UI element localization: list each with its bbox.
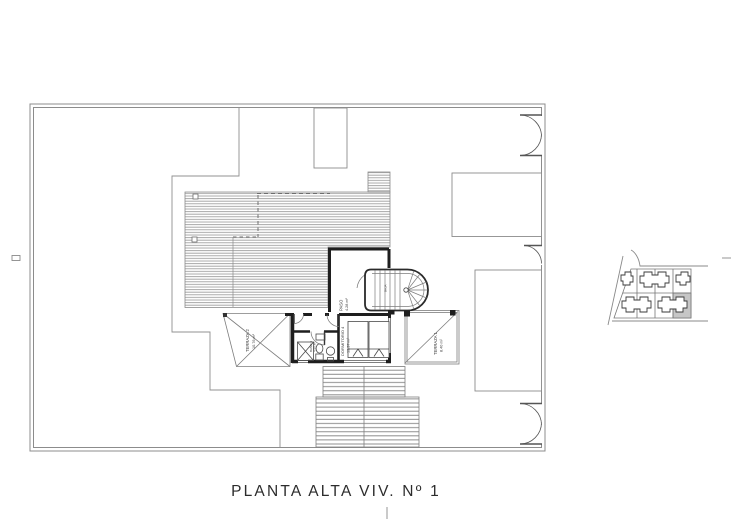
door2-arc: [524, 246, 542, 264]
sheet-title: PLANTA ALTA VIV. Nº 1: [231, 483, 441, 500]
bath-window-gap: [298, 359, 308, 363]
door1-opening: [540, 116, 544, 155]
patio-lower: [475, 270, 542, 391]
terraza1-area: 8.40 m²: [440, 338, 444, 352]
terraza-2: [223, 313, 290, 367]
stair-note-label: BAJA: [384, 284, 388, 292]
terraza1-post: [450, 310, 456, 316]
bed-2: [369, 322, 389, 358]
stair-center-column: [404, 288, 408, 292]
bed-1: [348, 322, 368, 358]
door2-opening: [540, 246, 544, 265]
site-key: [608, 250, 708, 325]
door3-opening: [540, 404, 544, 444]
staircase: [365, 270, 428, 317]
stair-bottom-post: [404, 311, 410, 317]
floor-plan-sheet: PASO 4.28 m² DORMITORIO 4 13.37 m² BAÑO …: [0, 0, 744, 526]
toilet-bowl: [316, 344, 323, 353]
steps-lower-block: [316, 397, 419, 447]
site-road-top: [631, 250, 708, 266]
bedroom-window-gap: [344, 359, 386, 363]
terraza2-door-arc: [294, 314, 304, 324]
roof-post-1: [193, 194, 198, 199]
paso-label: PASO: [339, 299, 344, 311]
terraza1-label: TERRAZA 1: [433, 332, 438, 355]
dormitorio4-label: DORMITORIO 4: [340, 326, 345, 356]
dormitorio4-area: 13.37 m²: [347, 337, 351, 353]
patio-upper: [452, 173, 542, 237]
floor-plan-drawing: PASO 4.28 m² DORMITORIO 4 13.37 m² BAÑO …: [0, 0, 744, 526]
site-house-4: [622, 297, 651, 312]
right-patios: [452, 173, 542, 391]
roof-chimney: [368, 172, 390, 192]
bano3-area: 4.50 m²: [313, 342, 317, 352]
toilet-tank: [316, 354, 323, 360]
beds: [348, 322, 389, 358]
door1-leaves: [520, 115, 542, 156]
door3-leaves: [520, 404, 542, 445]
roof-hatched-area: [185, 172, 390, 308]
terraza-1: [405, 310, 459, 364]
bidet: [326, 347, 334, 355]
terraza2-post: [223, 313, 227, 317]
paso-area: 4.28 m²: [345, 297, 349, 311]
terraza1-diagonal: [405, 312, 458, 364]
roof-post-2: [192, 237, 197, 242]
left-fold-mark: [12, 256, 20, 261]
site-house-2: [640, 272, 669, 287]
door3-arcs: [520, 404, 542, 445]
site-house-5: [658, 297, 687, 312]
terraza2-cross: [223, 314, 290, 367]
site-house-1: [621, 272, 633, 285]
terraza2-label: TERRAZA 2: [245, 329, 250, 352]
door1-arcs: [520, 115, 542, 156]
terraza2-area: 10.76 m²: [252, 333, 256, 349]
site-house-3: [676, 272, 690, 285]
washbasin: [316, 334, 325, 340]
roof-tank-outline: [314, 108, 347, 168]
exterior-steps: [316, 367, 419, 448]
